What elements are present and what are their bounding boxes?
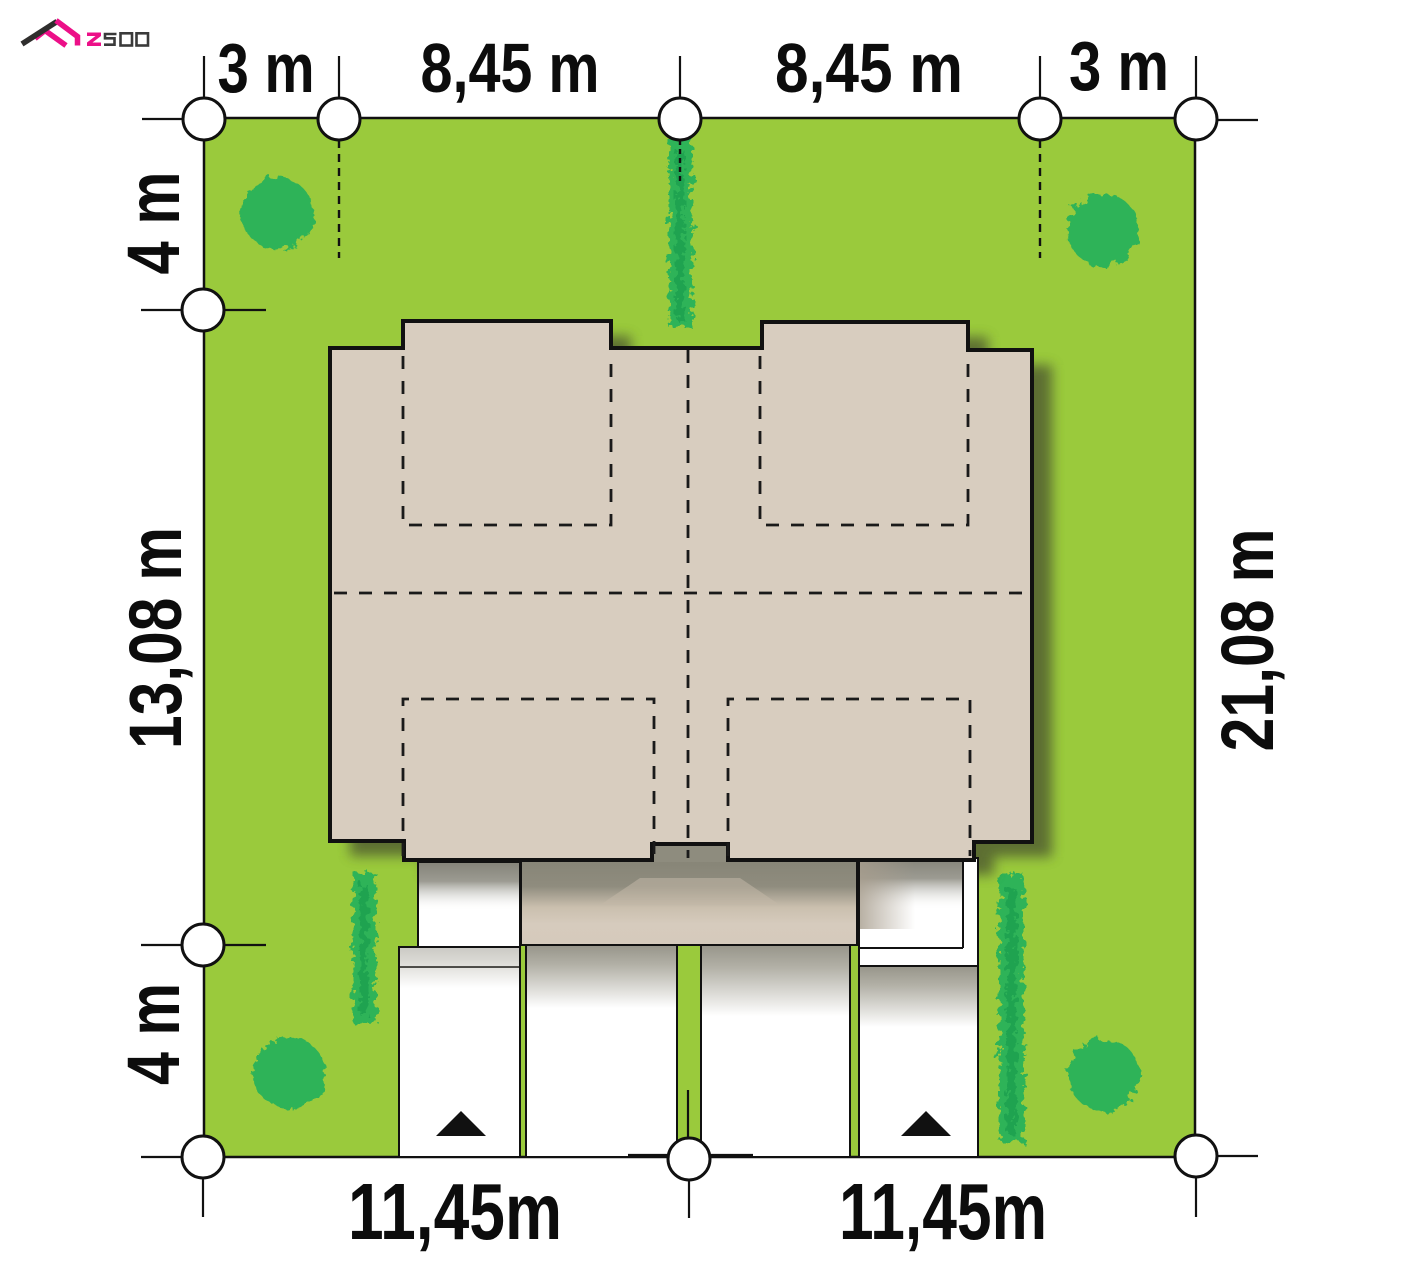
svg-text:3 m: 3 m xyxy=(218,29,315,107)
svg-text:13,08 m: 13,08 m xyxy=(114,527,197,749)
svg-text:8,45 m: 8,45 m xyxy=(775,29,963,107)
svg-text:21,08 m: 21,08 m xyxy=(1206,529,1289,752)
svg-text:11,45m: 11,45m xyxy=(839,1167,1047,1256)
svg-text:3 m: 3 m xyxy=(1069,27,1169,105)
svg-text:4 m: 4 m xyxy=(112,172,195,275)
svg-text:11,45m: 11,45m xyxy=(348,1167,562,1256)
svg-text:4 m: 4 m xyxy=(112,983,195,1085)
svg-text:8,45 m: 8,45 m xyxy=(421,29,600,107)
